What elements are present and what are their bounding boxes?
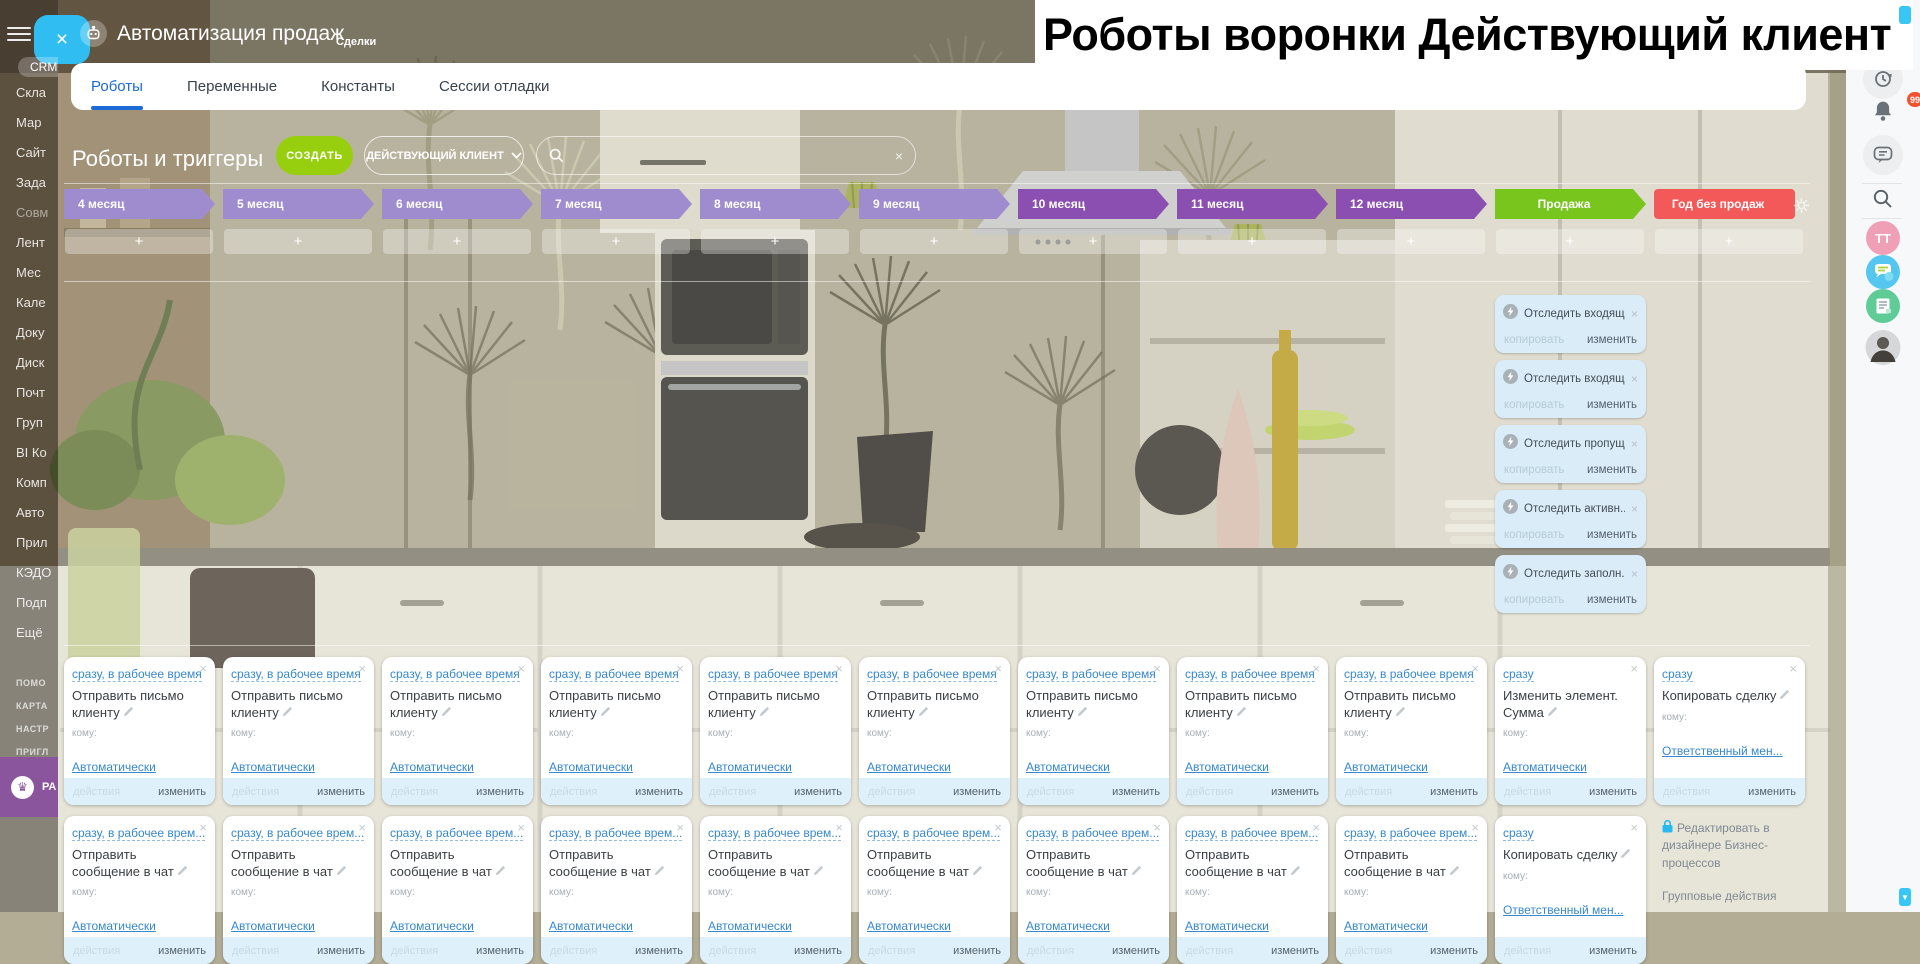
close-icon[interactable]: × [1630, 822, 1638, 833]
robot-card: сразу, в рабочее врем...×Отправить сообщ… [859, 816, 1010, 964]
robot-actions-link[interactable]: действия [1186, 945, 1233, 957]
robot-action-text: Копировать сделку [1662, 688, 1792, 705]
robot-action-text: Отправить сообщение в чат [549, 847, 679, 880]
robot-to-label: кому: [231, 728, 366, 739]
trigger-card: Отследить входящ...×копироватьизменить [1495, 360, 1646, 418]
edit-pencil-icon[interactable] [441, 705, 452, 722]
sidebar-item-Авто[interactable]: Авто [16, 505, 44, 520]
person-avatar-icon [1866, 330, 1901, 365]
magnifier-icon [1872, 188, 1894, 210]
robot-card: сразу, в рабочее врем...×Отправить сообщ… [700, 816, 851, 964]
close-icon[interactable]: × [994, 822, 1002, 833]
trigger-copy-link[interactable]: копировать [1504, 334, 1564, 346]
history-icon [1873, 69, 1893, 89]
robot-card-footer: действияизменить [1177, 937, 1328, 964]
create-button[interactable]: СОЗДАТЬ [276, 136, 353, 175]
robot-action-text: Отправить письмо клиенту [867, 688, 997, 721]
robot-card: сразу, в рабочее врем...×Отправить сообщ… [1177, 816, 1328, 964]
feedback-button[interactable] [1863, 135, 1903, 175]
close-icon[interactable]: × [1312, 663, 1320, 674]
sidebar-item-Почт[interactable]: Почт [16, 385, 45, 400]
robot-actions-link[interactable]: действия [868, 945, 915, 957]
robot-when-link[interactable]: сразу, в рабочее врем... [1026, 826, 1159, 841]
sidebar-item-Прил[interactable]: Прил [16, 535, 47, 550]
edit-pencil-icon[interactable] [177, 864, 188, 881]
robot-action-text: Отправить сообщение в чат [867, 847, 997, 880]
rail-divider [1862, 218, 1902, 219]
stage-chip-4 месяц[interactable]: 4 месяц [64, 189, 215, 219]
trigger-icon [1503, 564, 1518, 584]
sidebar-item-Мар[interactable]: Мар [16, 115, 41, 130]
robot-card: сразу, в рабочее время×Отправить письмо … [1018, 657, 1169, 805]
robot-to-link[interactable]: Автоматически [390, 760, 474, 774]
crown-icon: ♛ [11, 776, 34, 799]
bp-group-actions-link[interactable]: Групповые действия [1662, 888, 1812, 905]
trigger-card: Отследить заполн...×копироватьизменить [1495, 555, 1646, 613]
robot-edit-link[interactable]: изменить [1430, 945, 1478, 957]
close-icon[interactable]: × [1631, 504, 1638, 514]
sidebar-footer-НАСТР[interactable]: НАСТР [16, 724, 49, 734]
robot-when-link[interactable]: сразу, в рабочее врем... [72, 826, 205, 841]
robot-when-link[interactable]: сразу, в рабочее время [1026, 667, 1156, 682]
close-icon[interactable]: × [1630, 663, 1638, 674]
trigger-edit-link[interactable]: изменить [1587, 399, 1637, 411]
robot-when-link[interactable]: сразу, в рабочее врем... [1344, 826, 1477, 841]
sidebar-footer-КАРТА[interactable]: КАРТА [16, 701, 48, 711]
add-robot-button-Год без продаж[interactable]: + [1655, 229, 1803, 254]
robot-to-link[interactable]: Автоматически [1185, 919, 1269, 933]
add-robot-button-5 месяц[interactable]: + [224, 229, 372, 254]
robot-action-text: Отправить письмо клиенту [1185, 688, 1315, 721]
robot-actions-link[interactable]: действия [1504, 786, 1551, 798]
edit-pencil-icon[interactable] [600, 705, 611, 722]
scrollbar-thumb[interactable] [1899, 6, 1911, 24]
sidebar-item-Кале[interactable]: Кале [16, 295, 46, 310]
robot-edit-link[interactable]: изменить [635, 945, 683, 957]
stage-chip-11 месяц[interactable]: 11 месяц [1177, 189, 1328, 219]
robot-action-text: Отправить письмо клиенту [1344, 688, 1474, 721]
robot-actions-link[interactable]: действия [232, 945, 279, 957]
robot-when-link[interactable]: сразу, в рабочее время [1185, 667, 1315, 682]
robot-card: сразу, в рабочее врем...×Отправить сообщ… [64, 816, 215, 964]
robot-to-link[interactable]: Автоматически [1344, 919, 1428, 933]
robot-when-link[interactable]: сразу [1503, 667, 1534, 682]
robot-card-footer: действияизменить [859, 937, 1010, 964]
close-icon[interactable]: × [1631, 309, 1638, 319]
robot-when-link[interactable]: сразу [1662, 667, 1693, 682]
robot-action-text: Копировать сделку [1503, 847, 1633, 864]
add-robot-button-8 месяц[interactable]: + [701, 229, 849, 254]
edit-pencil-icon[interactable] [1395, 705, 1406, 722]
robot-to-label: кому: [390, 728, 525, 739]
robot-when-link[interactable]: сразу, в рабочее время [708, 667, 838, 682]
robot-edit-link[interactable]: изменить [1430, 786, 1478, 798]
sidebar-item-Зада[interactable]: Зада [16, 175, 46, 190]
robot-edit-link[interactable]: изменить [317, 945, 365, 957]
robot-actions-link[interactable]: действия [1345, 786, 1392, 798]
robot-actions-link[interactable]: действия [1027, 786, 1074, 798]
robot-to-link[interactable]: Автоматически [708, 760, 792, 774]
close-icon[interactable]: × [1153, 663, 1161, 674]
sidebar-item-Комп[interactable]: Комп [16, 475, 47, 490]
add-robot-button-11 месяц[interactable]: + [1178, 229, 1326, 254]
robot-card: сразу×Изменить элемент. Суммакому:Автома… [1495, 657, 1646, 805]
page-title: Автоматизация продаж [117, 22, 344, 46]
trigger-card-footer: копироватьизменить [1504, 594, 1637, 606]
notifications-button[interactable]: 99 [1871, 98, 1895, 124]
stage-chip-Год без продаж[interactable]: Год без продаж [1654, 189, 1795, 219]
robot-to-link[interactable]: Ответственный мен... [1662, 744, 1783, 758]
robot-card-footer: действияизменить [1018, 937, 1169, 964]
robot-edit-link[interactable]: изменить [1748, 786, 1796, 798]
stage-chip-12 месяц[interactable]: 12 месяц [1336, 189, 1487, 219]
robot-edit-link[interactable]: изменить [794, 945, 842, 957]
sidebar-item-Ещё[interactable]: Ещё [16, 625, 43, 640]
robot-card: сразу, в рабочее время×Отправить письмо … [64, 657, 215, 805]
rail-divider [1862, 183, 1902, 184]
robot-action-text: Изменить элемент. Сумма [1503, 688, 1633, 721]
robot-edit-link[interactable]: изменить [635, 786, 683, 798]
edit-pencil-icon[interactable] [918, 705, 929, 722]
avatar-initials: TT [1866, 221, 1900, 255]
tab-bar: РоботыПеременныеКонстантыСессии отладки [71, 63, 1806, 110]
messenger-button[interactable] [1866, 255, 1900, 289]
robot-card-footer: действияизменить [700, 937, 851, 964]
robot-action-text: Отправить сообщение в чат [708, 847, 838, 880]
robot-to-label: кому: [1185, 887, 1320, 898]
edit-pencil-icon[interactable] [1449, 864, 1460, 881]
robot-actions-link[interactable]: действия [1663, 786, 1710, 798]
edit-pencil-icon[interactable] [1620, 847, 1631, 864]
close-icon[interactable]: × [358, 663, 366, 674]
robot-action-text: Отправить сообщение в чат [1344, 847, 1474, 880]
robot-when-link[interactable]: сразу, в рабочее время [231, 667, 361, 682]
trigger-title: Отследить входящ... [1524, 373, 1625, 385]
close-icon[interactable]: × [1153, 822, 1161, 833]
robot-edit-link[interactable]: изменить [158, 945, 206, 957]
robot-card-footer: действияизменить [1336, 937, 1487, 964]
robot-action-text: Отправить сообщение в чат [1185, 847, 1315, 880]
robot-when-link[interactable]: сразу, в рабочее время [72, 667, 202, 682]
stages-settings-gear-icon[interactable] [1793, 197, 1810, 219]
robot-card-footer: действияизменить [1336, 778, 1487, 805]
trigger-copy-link[interactable]: копировать [1504, 594, 1564, 606]
user-avatar[interactable]: TT [1866, 221, 1900, 255]
robot-when-link[interactable]: сразу, в рабочее время [390, 667, 520, 682]
tab-Константы[interactable]: Константы [321, 78, 395, 95]
robot-edit-link[interactable]: изменить [317, 786, 365, 798]
robot-to-link[interactable]: Автоматически [231, 760, 315, 774]
close-icon[interactable]: × [835, 663, 843, 674]
robot-when-link[interactable]: сразу, в рабочее врем... [231, 826, 364, 841]
sidebar-item-Сайт[interactable]: Сайт [16, 145, 46, 160]
trigger-card: Отследить пропущ...×копироватьизменить [1495, 425, 1646, 483]
edit-pencil-icon[interactable] [336, 864, 347, 881]
edit-pencil-icon[interactable] [123, 705, 134, 722]
rail-search-button[interactable] [1872, 188, 1894, 210]
right-icon-rail: 99 TT [1846, 0, 1920, 912]
toolbar-divider [64, 183, 1810, 184]
robot-to-link[interactable]: Автоматически [549, 919, 633, 933]
trigger-edit-link[interactable]: изменить [1587, 529, 1637, 541]
robot-card: сразу, в рабочее время×Отправить письмо … [859, 657, 1010, 805]
trigger-edit-link[interactable]: изменить [1587, 334, 1637, 346]
add-robot-button-4 месяц[interactable]: + [65, 229, 213, 254]
robot-action-text: Отправить сообщение в чат [1026, 847, 1156, 880]
search-box[interactable]: × [536, 136, 916, 175]
robot-to-label: кому: [72, 728, 207, 739]
trigger-edit-link[interactable]: изменить [1587, 594, 1637, 606]
edit-pencil-icon[interactable] [1779, 688, 1790, 705]
robot-to-link[interactable]: Автоматически [549, 760, 633, 774]
edit-pencil-icon[interactable] [759, 705, 770, 722]
robot-to-label: кому: [1185, 728, 1320, 739]
scrollbar-down-button[interactable]: ▼ [1899, 888, 1911, 906]
sidebar-item-Мес[interactable]: Мес [16, 265, 41, 280]
edit-pencil-icon[interactable] [1547, 705, 1558, 722]
close-icon[interactable]: × [199, 822, 207, 833]
profile-photo-avatar[interactable] [1866, 330, 1901, 365]
robot-card: сразу, в рабочее врем...×Отправить сообщ… [541, 816, 692, 964]
robot-to-link[interactable]: Ответственный мен... [1503, 903, 1624, 917]
close-icon[interactable]: × [1789, 663, 1797, 674]
robot-action-text: Отправить письмо клиенту [390, 688, 520, 721]
robot-edit-link[interactable]: изменить [953, 945, 1001, 957]
trigger-card-footer: копироватьизменить [1504, 529, 1637, 541]
robot-when-link[interactable]: сразу, в рабочее врем... [390, 826, 523, 841]
robot-edit-link[interactable]: изменить [1112, 945, 1160, 957]
close-icon[interactable]: × [517, 663, 525, 674]
robot-card: сразу, в рабочее время×Отправить письмо … [1336, 657, 1487, 805]
stage-chip-Продажа[interactable]: Продажа [1495, 189, 1646, 219]
edit-pencil-icon[interactable] [1236, 705, 1247, 722]
robot-when-link[interactable]: сразу, в рабочее врем... [867, 826, 1000, 841]
edit-pencil-icon[interactable] [1131, 864, 1142, 881]
robot-actions-link[interactable]: действия [1345, 945, 1392, 957]
robot-card: сразу, в рабочее время×Отправить письмо … [1177, 657, 1328, 805]
sidebar-item-Лент[interactable]: Лент [16, 235, 45, 250]
robot-actions-link[interactable]: действия [709, 786, 756, 798]
robot-action-text: Отправить сообщение в чат [390, 847, 520, 880]
close-icon[interactable]: × [1631, 569, 1638, 579]
robot-to-link[interactable]: Автоматически [72, 919, 156, 933]
robot-edit-link[interactable]: изменить [1589, 945, 1637, 957]
robot-to-link[interactable]: Автоматически [1185, 760, 1269, 774]
news-icon [1866, 289, 1900, 323]
sidebar-item-Подп[interactable]: Подп [16, 595, 47, 610]
robot-to-label: кому: [1026, 887, 1161, 898]
robot-edit-link[interactable]: изменить [476, 945, 524, 957]
robot-edit-link[interactable]: изменить [1271, 945, 1319, 957]
close-icon[interactable]: × [676, 663, 684, 674]
sidebar-item-Диск[interactable]: Диск [16, 355, 44, 370]
close-icon[interactable]: × [1631, 374, 1638, 384]
sidebar-item-КЭДО[interactable]: КЭДО [16, 565, 51, 580]
sidebar-item-Доку[interactable]: Доку [16, 325, 45, 340]
close-icon[interactable]: × [1312, 822, 1320, 833]
add-robot-button-6 месяц[interactable]: + [383, 229, 531, 254]
robot-when-link[interactable]: сразу, в рабочее время [867, 667, 997, 682]
close-icon[interactable]: × [676, 822, 684, 833]
add-robot-button-10 месяц[interactable]: + [1019, 229, 1167, 254]
trigger-icon [1503, 434, 1518, 454]
robot-actions-link[interactable]: действия [550, 786, 597, 798]
robot-to-link[interactable]: Автоматически [1344, 760, 1428, 774]
close-icon[interactable]: × [517, 822, 525, 833]
robot-card-footer: действияизменить [541, 937, 692, 964]
robot-card: сразу, в рабочее время×Отправить письмо … [223, 657, 374, 805]
robot-edit-link[interactable]: изменить [794, 786, 842, 798]
edit-pencil-icon[interactable] [654, 864, 665, 881]
trigger-card-footer: копироватьизменить [1504, 464, 1637, 476]
robot-card-footer: действияизменить [382, 937, 533, 964]
chevron-down-icon [511, 152, 522, 159]
robot-actions-link[interactable]: действия [709, 945, 756, 957]
tariff-banner[interactable]: ♛ РА [0, 757, 58, 817]
robot-card-footer: действияизменить [1495, 778, 1646, 805]
robot-edit-link[interactable]: изменить [158, 786, 206, 798]
robot-to-link[interactable]: Автоматически [867, 760, 951, 774]
robot-when-link[interactable]: сразу, в рабочее время [1344, 667, 1474, 682]
close-icon[interactable]: × [1471, 663, 1479, 674]
edit-pencil-icon[interactable] [282, 705, 293, 722]
edit-pencil-icon[interactable] [972, 864, 983, 881]
robot-to-link[interactable]: Автоматически [231, 919, 315, 933]
edit-pencil-icon[interactable] [813, 864, 824, 881]
add-robot-button-7 месяц[interactable]: + [542, 229, 690, 254]
robot-to-label: кому: [1503, 871, 1638, 882]
bell-icon [1871, 98, 1895, 124]
robot-when-link[interactable]: сразу, в рабочее врем... [549, 826, 682, 841]
robot-to-link[interactable]: Автоматически [1026, 760, 1110, 774]
robot-when-link[interactable]: сразу, в рабочее время [549, 667, 679, 682]
close-icon[interactable]: × [994, 663, 1002, 674]
robot-to-link[interactable]: Автоматически [1026, 919, 1110, 933]
robot-actions-link[interactable]: действия [232, 786, 279, 798]
stage-chip-10 месяц[interactable]: 10 месяц [1018, 189, 1169, 219]
news-button[interactable] [1866, 289, 1900, 323]
robot-to-link[interactable]: Автоматически [1503, 760, 1587, 774]
edit-pencil-icon[interactable] [495, 864, 506, 881]
trigger-copy-link[interactable]: копировать [1504, 464, 1564, 476]
add-robot-button-12 месяц[interactable]: + [1337, 229, 1485, 254]
sidebar-footer-ПРИГЛ[interactable]: ПРИГЛ [16, 747, 49, 757]
sidebar-item-Совм[interactable]: Совм [16, 205, 48, 220]
robot-card: сразу, в рабочее время×Отправить письмо … [382, 657, 533, 805]
robot-edit-link[interactable]: изменить [476, 786, 524, 798]
trigger-card-header: Отследить пропущ...× [1495, 425, 1646, 454]
robot-actions-link[interactable]: действия [1027, 945, 1074, 957]
robot-actions-link[interactable]: действия [1186, 786, 1233, 798]
robot-action-text: Отправить письмо клиенту [72, 688, 202, 721]
robot-actions-link[interactable]: действия [391, 786, 438, 798]
robot-to-link[interactable]: Автоматически [390, 919, 474, 933]
trigger-copy-link[interactable]: копировать [1504, 399, 1564, 411]
robot-actions-link[interactable]: действия [550, 945, 597, 957]
robot-action-text: Отправить письмо клиенту [231, 688, 361, 721]
close-icon[interactable]: × [1471, 822, 1479, 833]
sidebar-item-Груп[interactable]: Груп [16, 415, 43, 430]
sidebar-item-Скла[interactable]: Скла [16, 85, 46, 100]
stage-chip-6 месяц[interactable]: 6 месяц [382, 189, 533, 219]
robot-actions-link[interactable]: действия [868, 786, 915, 798]
robot-action-text: Отправить письмо клиенту [549, 688, 679, 721]
robot-when-link[interactable]: сразу, в рабочее врем... [1185, 826, 1318, 841]
robot-card: сразу×Копировать сделкукому:Ответственны… [1654, 657, 1805, 805]
notification-count-badge: 99 [1907, 92, 1920, 107]
close-icon[interactable]: × [835, 822, 843, 833]
tab-Переменные[interactable]: Переменные [187, 78, 277, 95]
robot-when-link[interactable]: сразу, в рабочее врем... [708, 826, 841, 841]
funnel-selector-dropdown[interactable]: ДЕЙСТВУЮЩИЙ КЛИЕНТ [364, 136, 524, 175]
search-input[interactable] [572, 147, 887, 164]
robot-to-label: кому: [867, 887, 1002, 898]
robot-to-link[interactable]: Автоматически [708, 919, 792, 933]
robot-edit-link[interactable]: изменить [953, 786, 1001, 798]
trigger-card-footer: копироватьизменить [1504, 399, 1637, 411]
robot-to-link[interactable]: Автоматически [867, 919, 951, 933]
entity-selector[interactable]: Сделки [336, 36, 376, 48]
stage-chip-5 месяц[interactable]: 5 месяц [223, 189, 374, 219]
robot-to-label: кому: [549, 728, 684, 739]
close-icon[interactable]: × [358, 822, 366, 833]
search-clear-icon[interactable]: × [895, 148, 903, 164]
robot-to-label: кому: [708, 728, 843, 739]
add-robot-button-9 месяц[interactable]: + [860, 229, 1008, 254]
robot-to-label: кому: [1344, 887, 1479, 898]
robot-actions-link[interactable]: действия [1504, 945, 1551, 957]
close-icon[interactable]: × [1631, 439, 1638, 449]
close-icon[interactable]: × [199, 663, 207, 674]
tab-Сессии отладки[interactable]: Сессии отладки [439, 78, 549, 95]
robot-card-footer: действияизменить [700, 778, 851, 805]
trigger-title: Отследить входящ... [1524, 308, 1625, 320]
robot-edit-link[interactable]: изменить [1589, 786, 1637, 798]
robot-action-text: Отправить сообщение в чат [231, 847, 361, 880]
robot-to-link[interactable]: Автоматически [72, 760, 156, 774]
sidebar-item-CRM[interactable]: CRM [18, 57, 58, 77]
board-scroll-strip[interactable] [1828, 0, 1846, 912]
robot-edit-link[interactable]: изменить [1112, 786, 1160, 798]
robot-actions-link[interactable]: действия [73, 786, 120, 798]
stage-divider [64, 281, 1810, 282]
stage-chip-8 месяц[interactable]: 8 месяц [700, 189, 851, 219]
robot-actions-link[interactable]: действия [391, 945, 438, 957]
bp-designer-label: Редактировать в дизайнере Бизнес-процесс… [1662, 821, 1770, 870]
edit-pencil-icon[interactable] [1077, 705, 1088, 722]
robot-when-link[interactable]: сразу [1503, 826, 1534, 841]
robot-card-footer: действияизменить [1654, 778, 1805, 805]
sidebar-footer-ПОМО[interactable]: ПОМО [16, 678, 46, 688]
trigger-copy-link[interactable]: копировать [1504, 529, 1564, 541]
robot-card: сразу, в рабочее врем...×Отправить сообщ… [223, 816, 374, 964]
add-robot-button-Продажа[interactable]: + [1496, 229, 1644, 254]
chat-lines-icon [1873, 146, 1893, 164]
robot-to-label: кому: [708, 887, 843, 898]
tab-Роботы[interactable]: Роботы [91, 78, 143, 95]
trigger-card-header: Отследить заполн...× [1495, 555, 1646, 584]
robot-card-footer: действияизменить [64, 778, 215, 805]
robot-card: сразу, в рабочее врем...×Отправить сообщ… [1336, 816, 1487, 964]
stage-chip-7 месяц[interactable]: 7 месяц [541, 189, 692, 219]
robot-edit-link[interactable]: изменить [1271, 786, 1319, 798]
trigger-edit-link[interactable]: изменить [1587, 464, 1637, 476]
bp-designer-link[interactable]: Редактировать в дизайнере Бизнес-процесс… [1662, 820, 1812, 872]
sidebar-item-BI Ко[interactable]: BI Ко [16, 445, 47, 460]
robot-actions-link[interactable]: действия [73, 945, 120, 957]
edit-pencil-icon[interactable] [1290, 864, 1301, 881]
stage-chip-9 месяц[interactable]: 9 месяц [859, 189, 1010, 219]
